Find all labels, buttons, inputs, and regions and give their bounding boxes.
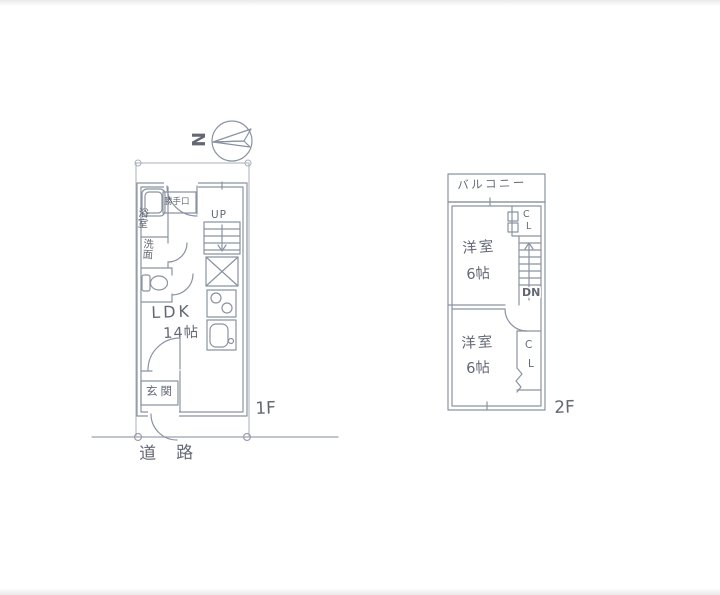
washroom-door-arc [168, 243, 187, 262]
balcony-label: バルコニー [457, 178, 527, 192]
entrance-label: 玄関 [146, 386, 175, 398]
front-door-opening [148, 409, 179, 419]
room-divider-wall-2f [448, 305, 505, 309]
building-outline-2f [448, 202, 545, 410]
road-line [92, 434, 338, 441]
refrigerator-space [206, 257, 238, 286]
compass-north-label: N [191, 132, 209, 147]
floor1-label: 1F [255, 400, 276, 418]
stairs-up [204, 222, 240, 254]
stairs-up-label: UP [211, 210, 227, 221]
road-label: 道路 [139, 445, 213, 463]
room2-door-arc [505, 309, 527, 331]
floorplan-drawing [0, 0, 720, 595]
room1-label: 洋室 [462, 240, 496, 257]
closet2-c-label: C [525, 340, 532, 351]
toilet-door-arc [172, 274, 193, 295]
closet2-l-label: L [528, 359, 534, 370]
floorplan-page: N 勝手口 浴室 洗面 UP LDK 14帖 玄関 1F 道路 バルコニー C … [0, 0, 720, 595]
compass-icon [212, 121, 252, 161]
bathroom-label: 浴室 [137, 207, 149, 229]
ldk-label: LDK [151, 304, 192, 321]
closet1-l-label: L [526, 222, 531, 232]
stove [207, 290, 236, 317]
entrance-inner-door-arc [148, 338, 180, 370]
room1-size-label: 6帖 [466, 267, 490, 283]
stairs-down-label: DN [521, 287, 541, 298]
room2-size-label: 6帖 [466, 361, 490, 376]
closet1-c-label: C [523, 210, 530, 220]
kitchen-sink [207, 320, 236, 350]
floor2-label: 2F [554, 399, 575, 417]
backdoor-label: 勝手口 [164, 198, 190, 207]
toilet-fixture [142, 275, 168, 291]
ldk-size-label: 14帖 [163, 326, 199, 342]
washroom-label: 洗面 [142, 238, 154, 260]
room2-label: 洋室 [461, 335, 495, 351]
backdoor-opening [164, 180, 198, 189]
